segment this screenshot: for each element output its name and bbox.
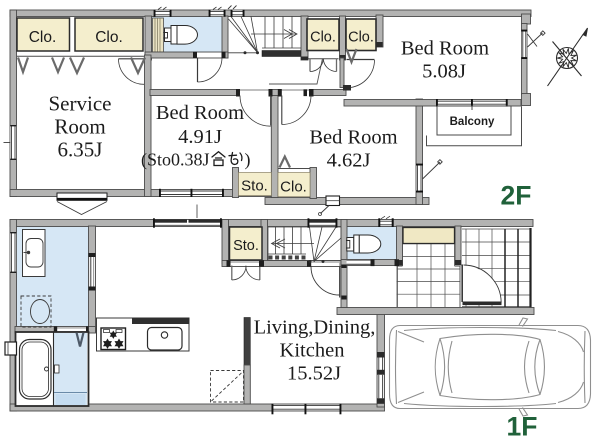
svg-text:Bed Room: Bed Room bbox=[309, 127, 397, 149]
svg-text:Clo.: Clo. bbox=[310, 30, 336, 46]
svg-text:Clo.: Clo. bbox=[348, 30, 374, 46]
svg-text:Living,Dining,: Living,Dining, bbox=[254, 317, 376, 339]
svg-text:6.35J: 6.35J bbox=[58, 138, 103, 162]
svg-text:4.91J: 4.91J bbox=[178, 126, 222, 148]
svg-text:Sto.: Sto. bbox=[241, 178, 268, 195]
svg-text:Clo.: Clo. bbox=[95, 29, 123, 46]
svg-text:Clo.: Clo. bbox=[280, 179, 307, 196]
svg-text:Sto.: Sto. bbox=[233, 238, 259, 254]
svg-text:Bed Room: Bed Room bbox=[156, 102, 244, 124]
svg-text:Service: Service bbox=[49, 92, 112, 116]
svg-text:Bed Room: Bed Room bbox=[401, 38, 489, 60]
svg-text:4.62J: 4.62J bbox=[327, 150, 371, 172]
svg-text:(Sto0.38J: (Sto0.38J bbox=[141, 150, 210, 171]
svg-text:Clo.: Clo. bbox=[29, 29, 57, 46]
svg-text:2F: 2F bbox=[501, 181, 532, 211]
svg-text:): ) bbox=[245, 150, 251, 171]
svg-text:Balcony: Balcony bbox=[450, 116, 495, 128]
svg-text:Kitchen: Kitchen bbox=[280, 340, 345, 362]
svg-text:5.08J: 5.08J bbox=[422, 61, 466, 83]
svg-text:1F: 1F bbox=[507, 412, 538, 439]
svg-text:15.52J: 15.52J bbox=[287, 363, 341, 385]
svg-text:Room: Room bbox=[54, 115, 105, 139]
